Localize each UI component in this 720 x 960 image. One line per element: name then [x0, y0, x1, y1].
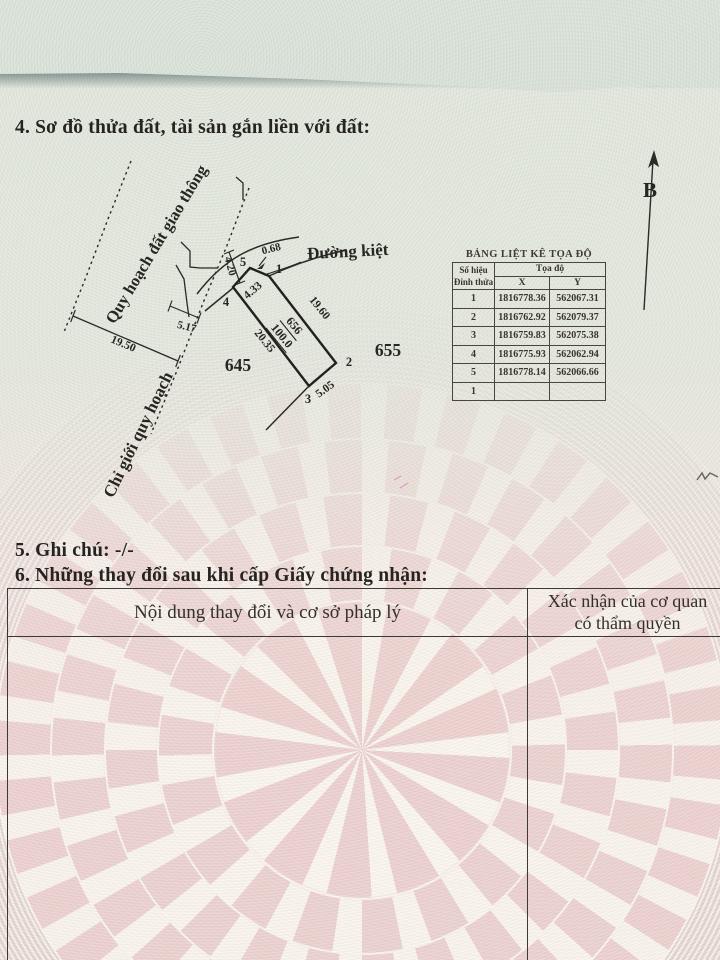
- y-cell: 562067.31: [550, 290, 605, 309]
- dim-420: 4.20: [222, 255, 239, 277]
- step-line-a: [181, 242, 218, 268]
- planning-boundary-label: Chỉ giới quy hoạch: [99, 368, 177, 500]
- section5-heading: 5. Ghi chú: -/-: [15, 540, 134, 562]
- dim-1950: 19.50: [109, 334, 138, 355]
- coordinate-table-block: BẢNG LIỆT KÊ TỌA ĐỘ Số hiệu Đỉnh thửa Tọ…: [452, 249, 606, 401]
- changes-table-body: [8, 636, 720, 960]
- neighbor-parcel-655: 655: [375, 340, 402, 360]
- vertex-4: 4: [223, 295, 230, 309]
- dim-road-width: 19.50: [71, 310, 181, 367]
- changes-content-header: Nội dung thay đổi và cơ sở pháp lý: [8, 589, 528, 636]
- coord-group-header: Tọa độ: [495, 263, 605, 277]
- x-cell: [495, 383, 550, 401]
- x-header: X: [495, 277, 550, 291]
- corner-header-line1: Số hiệu: [459, 264, 487, 276]
- x-cell: 1816759.83: [495, 327, 550, 346]
- section6-heading: 6. Những thay đổi sau khi cấp Giấy chứng…: [15, 565, 428, 587]
- neighbor-parcel-645: 645: [225, 355, 252, 375]
- vertex-id-cell: 4: [453, 346, 495, 365]
- vertex-1: 1: [276, 262, 282, 276]
- authority-header-line2: có thẩm quyền: [575, 613, 681, 634]
- coordinate-table-title: BẢNG LIỆT KÊ TỌA ĐỘ: [452, 249, 606, 260]
- road-upper-edge: [197, 237, 299, 294]
- x-cell: 1816775.93: [495, 346, 550, 365]
- changes-authority-header: Xác nhận của cơ quan có thẩm quyền: [528, 589, 720, 636]
- dim-offset: 5.17: [168, 301, 201, 336]
- vertex-3: 3: [305, 392, 311, 406]
- vertex-id-cell: 3: [453, 327, 495, 346]
- vertex-5: 5: [240, 255, 246, 269]
- changes-table: Nội dung thay đổi và cơ sở pháp lý Xác n…: [7, 588, 720, 960]
- coordinate-table: Số hiệu Đỉnh thửa Tọa độ X Y 1 1816778.3…: [452, 262, 606, 401]
- x-cell: 1816778.14: [495, 364, 550, 383]
- vertex-id-cell: 2: [453, 309, 495, 328]
- changes-table-divider: [527, 636, 528, 960]
- y-cell: 562062.94: [550, 346, 605, 365]
- corner-header-line2: Đỉnh thửa: [454, 276, 493, 288]
- y-header: Y: [550, 277, 605, 291]
- north-arrow: B: [643, 150, 659, 310]
- x-cell: 1816762.92: [495, 309, 550, 328]
- changes-table-header: Nội dung thay đổi và cơ sở pháp lý Xác n…: [8, 589, 720, 637]
- road-name: Đường kiệt: [307, 240, 390, 263]
- dim-505: 5.05: [314, 379, 338, 401]
- boundary-extension: [266, 386, 309, 430]
- road-inner-edge: [264, 262, 301, 275]
- authority-header-line1: Xác nhận của cơ quan: [548, 591, 707, 612]
- planning-corridor-label: Quy hoạch đất giao thông: [101, 161, 211, 327]
- vertex-id-cell: 1: [453, 290, 495, 309]
- vertex-2: 2: [346, 355, 352, 369]
- north-label: B: [643, 178, 657, 202]
- vertex-id-cell: 1: [453, 383, 495, 401]
- pink-smudge: [394, 476, 408, 488]
- dim-1960: 19.60: [307, 294, 333, 322]
- y-cell: 562079.37: [550, 309, 605, 328]
- vertex-id-cell: 5: [453, 364, 495, 383]
- y-cell: 562066.66: [550, 364, 605, 383]
- pen-scribble: [697, 473, 718, 480]
- dim-433: 4.33: [242, 279, 265, 301]
- certificate-photo: 4. Sơ đồ thửa đất, tài sản gắn liền với …: [0, 0, 720, 960]
- corner-header: Số hiệu Đỉnh thửa: [453, 263, 495, 290]
- y-cell: [550, 383, 605, 401]
- y-cell: 562075.38: [550, 327, 605, 346]
- step-line-c: [236, 177, 243, 200]
- dim-068: 0.68: [260, 241, 282, 257]
- x-cell: 1816778.36: [495, 290, 550, 309]
- dim-517: 5.17: [176, 319, 198, 335]
